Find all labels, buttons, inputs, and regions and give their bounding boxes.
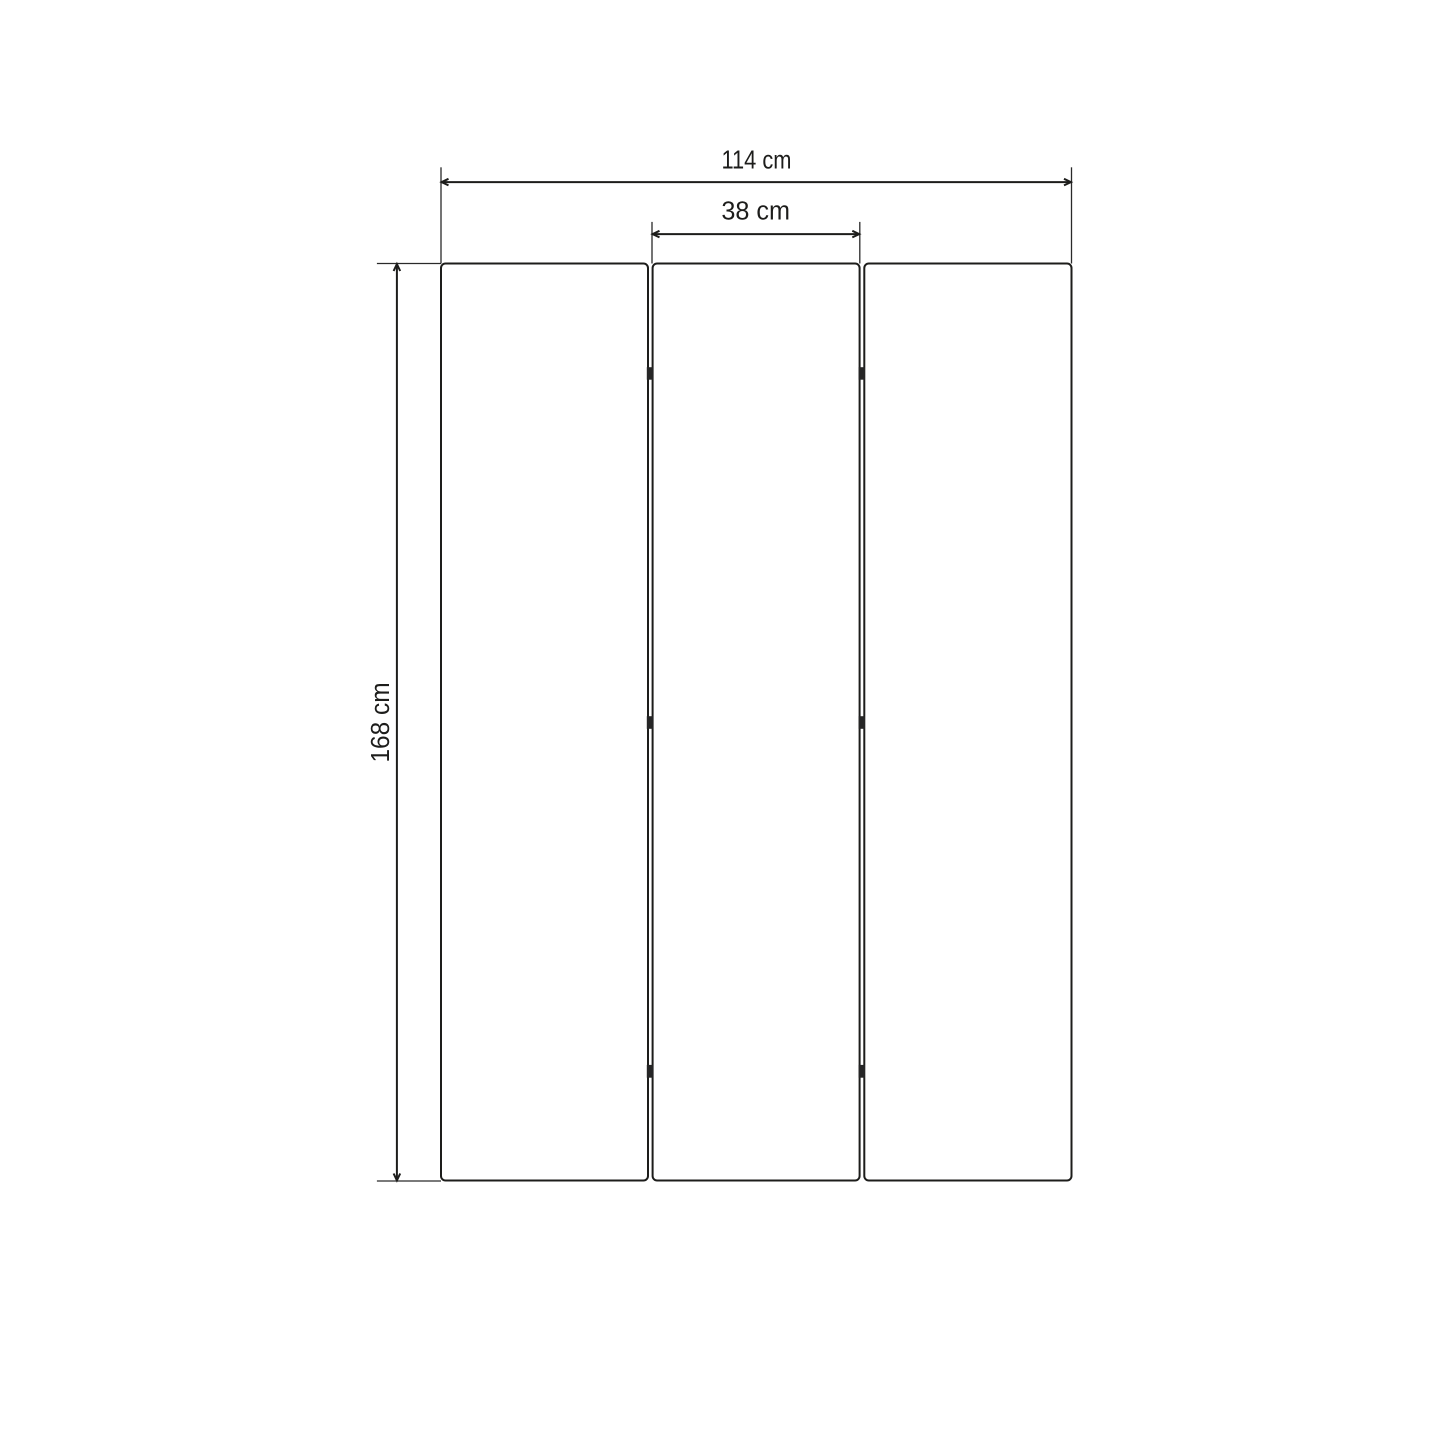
svg-text:38 cm: 38 cm	[721, 197, 790, 225]
svg-text:114 cm: 114 cm	[722, 146, 792, 175]
svg-text:168 cm: 168 cm	[366, 682, 395, 762]
